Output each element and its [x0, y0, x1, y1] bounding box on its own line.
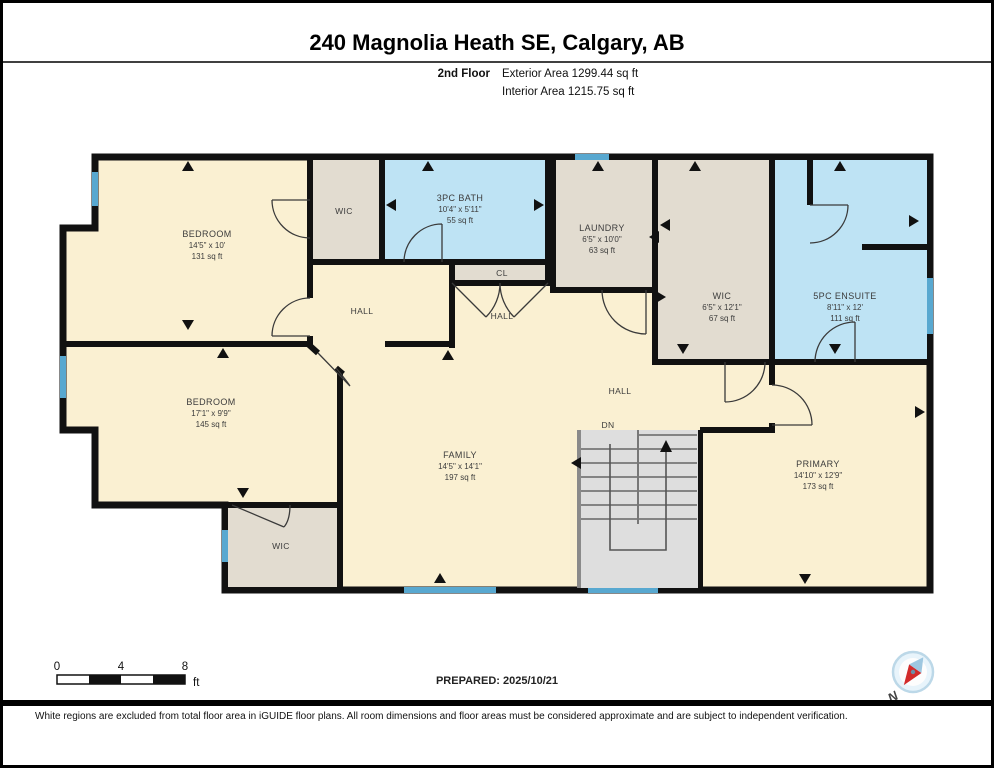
floor-plan-page: 240 Magnolia Heath SE, Calgary, AB 2nd F…: [0, 0, 994, 768]
label-primary-area: 173 sq ft: [803, 482, 834, 491]
label-wic-bottom: WIC: [272, 541, 290, 551]
label-hall-mid: HALL: [491, 311, 514, 321]
scale-tick-0: 0: [54, 661, 60, 673]
label-hall-right: HALL: [609, 386, 632, 396]
label-bedroom2-dims: 17'1" x 9'9": [191, 409, 231, 418]
label-wic-top: WIC: [335, 206, 353, 216]
floor-label: 2nd Floor: [438, 68, 491, 80]
label-wic-mid-dims: 6'5" x 12'1": [702, 303, 742, 312]
scale-bar: 0 4 8 ft: [54, 661, 200, 689]
label-family-area: 197 sq ft: [445, 473, 476, 482]
disclaimer-text: White regions are excluded from total fl…: [35, 711, 848, 722]
label-family-name: FAMILY: [443, 450, 477, 460]
window-bedroom2: [60, 356, 66, 398]
label-bath-area: 55 sq ft: [447, 216, 474, 225]
window-bedroom1: [92, 172, 98, 206]
label-ensuite-name: 5PC ENSUITE: [813, 291, 876, 301]
label-hall-left: HALL: [351, 306, 374, 316]
label-laundry-area: 63 sq ft: [589, 246, 616, 255]
label-laundry-dims: 6'5" x 10'0": [582, 235, 622, 244]
label-bedroom1-name: BEDROOM: [182, 229, 231, 239]
staircase: [578, 430, 698, 588]
label-bedroom2-area: 145 sq ft: [196, 420, 227, 429]
label-stairs-dn: DN: [601, 420, 614, 430]
exterior-area: Exterior Area 1299.44 sq ft: [502, 68, 639, 80]
room-5pc-ensuite: [772, 157, 930, 362]
window-laundry: [575, 154, 609, 160]
scale-unit: ft: [193, 677, 200, 689]
label-family-dims: 14'5" x 14'1": [438, 462, 482, 471]
label-wic-mid-area: 67 sq ft: [709, 314, 736, 323]
compass-icon: N: [885, 652, 933, 706]
scale-tick-8: 8: [182, 661, 188, 673]
label-cl: CL: [496, 268, 508, 278]
label-ensuite-dims: 8'11" x 12': [827, 303, 863, 312]
floor-plan-svg: 240 Magnolia Heath SE, Calgary, AB 2nd F…: [0, 0, 994, 768]
label-bedroom2-name: BEDROOM: [186, 397, 235, 407]
interior-area: Interior Area 1215.75 sq ft: [502, 86, 635, 98]
label-bedroom1-dims: 14'5" x 10': [189, 241, 226, 250]
label-bath-name: 3PC BATH: [437, 193, 484, 203]
label-ensuite-area: 111 sq ft: [830, 314, 860, 323]
label-primary-name: PRIMARY: [796, 459, 840, 469]
page-title: 240 Magnolia Heath SE, Calgary, AB: [309, 30, 684, 55]
footer-divider-bar: [3, 700, 991, 706]
label-laundry-name: LAUNDRY: [579, 223, 625, 233]
label-primary-dims: 14'10" x 12'9": [794, 471, 842, 480]
window-family: [404, 587, 496, 593]
window-wic-bottom: [222, 530, 228, 562]
room-wic-mid: [655, 157, 772, 362]
prepared-date: PREPARED: 2025/10/21: [436, 675, 558, 687]
label-bedroom1-area: 131 sq ft: [192, 252, 223, 261]
label-wic-mid-name: WIC: [713, 291, 732, 301]
label-bath-dims: 10'4" x 5'11": [438, 205, 481, 214]
window-ensuite: [927, 278, 933, 334]
scale-tick-4: 4: [118, 661, 125, 673]
